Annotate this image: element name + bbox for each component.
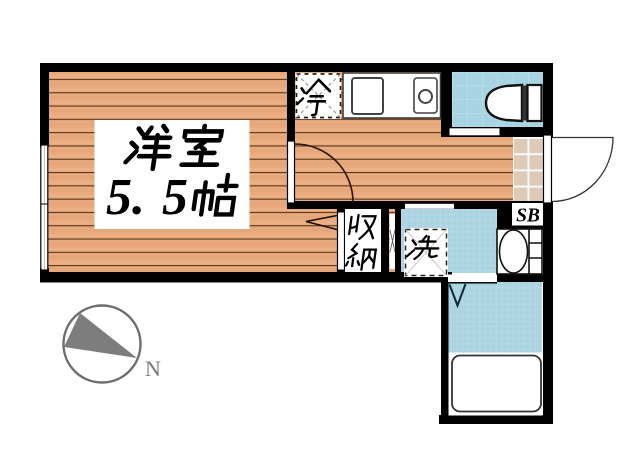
svg-text:SB: SB: [516, 206, 540, 227]
svg-text:N: N: [145, 356, 161, 381]
svg-text:5.: 5.: [106, 169, 145, 226]
svg-text:5: 5: [162, 169, 188, 226]
